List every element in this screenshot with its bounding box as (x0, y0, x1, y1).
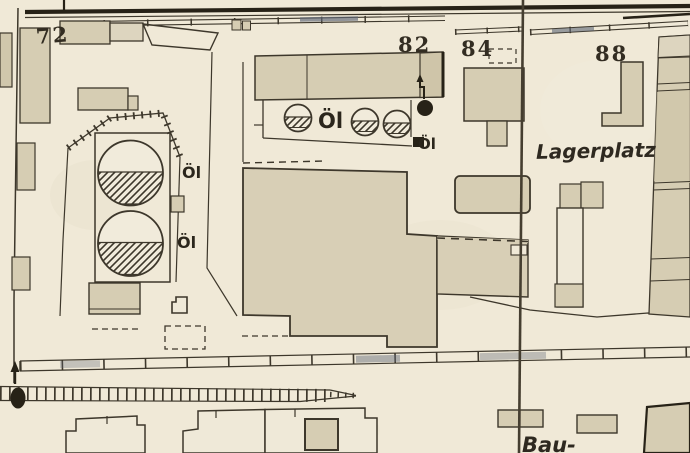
parcel-number-88: 88 (595, 41, 628, 66)
pump-house (171, 196, 184, 212)
street-shed-1 (232, 20, 241, 30)
building-84-annex (487, 121, 507, 146)
small-oil-tank-3 (383, 111, 411, 138)
right-column-dark (654, 90, 690, 183)
oil-label-near-marker: Öl (418, 134, 436, 153)
street-shed-2 (243, 21, 251, 30)
parcel-number-82: 82 (398, 32, 431, 57)
site-plan-map: 72 82 84 88 Öl Öl Öl Öl Lagerplatz Bau- (0, 0, 690, 453)
oil-label-large-tank-lower: Öl (177, 233, 196, 252)
building-82-main (255, 52, 443, 100)
oil-label-tank-row: Öl (318, 108, 343, 133)
building-84 (464, 68, 524, 121)
bottom-shed-right (577, 415, 617, 433)
small-oil-tank-2 (351, 109, 379, 136)
small-oil-tank-1 (284, 105, 312, 132)
map-canvas: 72 82 84 88 Öl Öl Öl Öl Lagerplatz Bau- (0, 0, 690, 453)
black-dot-marker (417, 100, 433, 116)
bau-label: Bau- (522, 433, 576, 453)
bottom-right-building (644, 403, 690, 453)
large-oil-tank-2 (97, 211, 164, 277)
yard-shed-2 (581, 182, 603, 208)
oil-label-large-tank-upper: Öl (182, 163, 201, 182)
left-shed-1 (0, 33, 12, 87)
yard-shed-1 (560, 184, 581, 209)
rounded-building (455, 176, 530, 213)
left-shed-3 (12, 257, 30, 290)
extension-notch (511, 245, 527, 255)
building-72-middle (78, 88, 128, 110)
building-72-annex (128, 96, 138, 110)
parcel-number-72: 72 (35, 21, 70, 49)
bottom-building-1 (66, 416, 145, 453)
large-oil-tank-1 (97, 141, 164, 206)
left-shed-2 (17, 143, 35, 190)
building-72-top-b (110, 23, 143, 41)
yard-long-structure-base (555, 284, 583, 307)
right-column-top (658, 35, 690, 58)
boundary-stone-marker (11, 388, 26, 409)
lagerplatz-label: Lagerplatz (536, 138, 657, 164)
parcel-number-84: 84 (461, 36, 494, 61)
courtyard-building (305, 419, 338, 450)
